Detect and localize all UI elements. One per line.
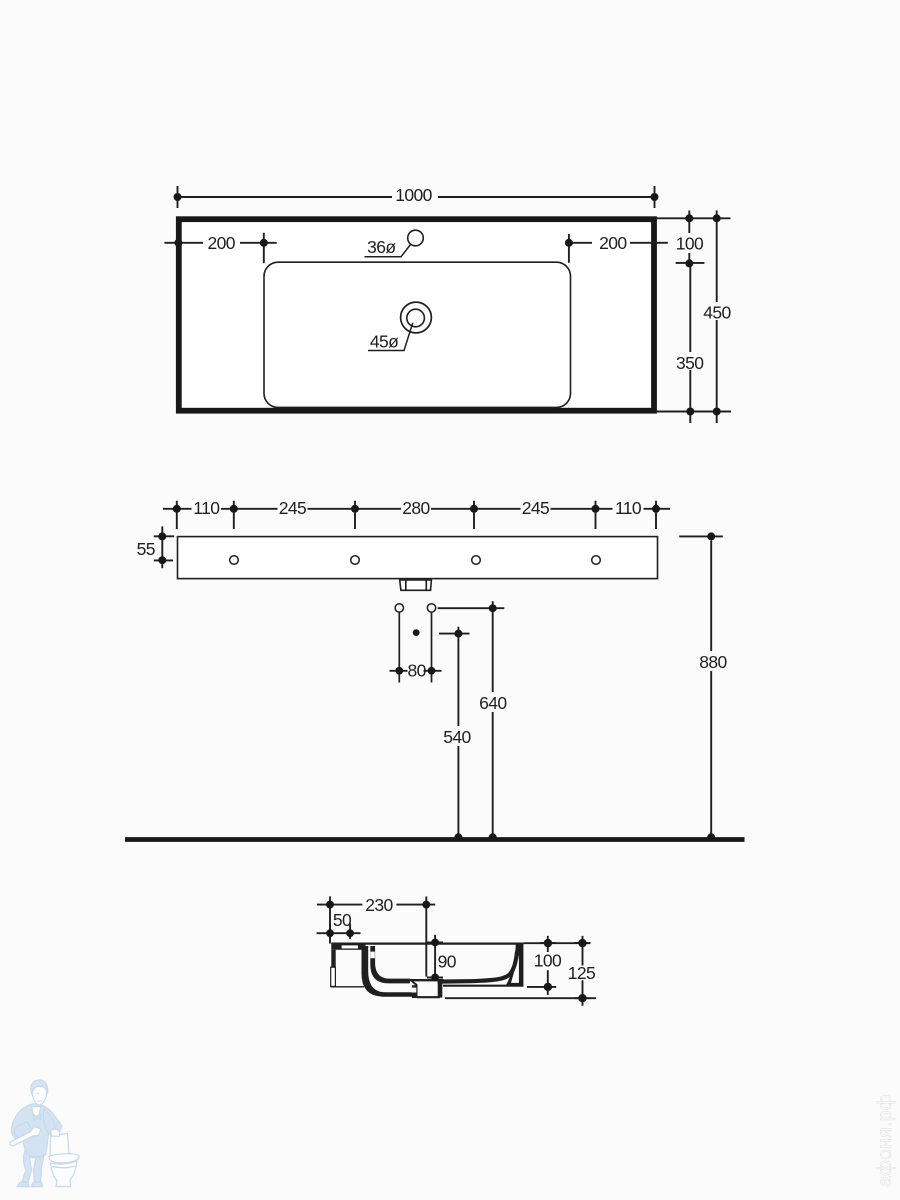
svg-text:афоня.рф: афоня.рф [875, 1094, 896, 1187]
svg-text:50: 50 [333, 910, 352, 930]
svg-text:90: 90 [438, 951, 457, 971]
svg-text:245: 245 [522, 498, 549, 518]
svg-text:880: 880 [699, 652, 727, 672]
svg-text:540: 540 [443, 727, 471, 747]
svg-text:100: 100 [676, 233, 704, 253]
svg-text:640: 640 [479, 693, 507, 713]
svg-text:245: 245 [279, 498, 306, 518]
svg-text:110: 110 [193, 498, 220, 518]
svg-text:45ø: 45ø [370, 332, 399, 352]
svg-text:80: 80 [407, 660, 426, 680]
svg-text:350: 350 [676, 353, 704, 373]
svg-text:230: 230 [365, 895, 393, 915]
svg-text:110: 110 [615, 498, 642, 518]
svg-text:200: 200 [207, 233, 235, 253]
svg-text:125: 125 [568, 963, 595, 983]
svg-text:1000: 1000 [395, 185, 432, 205]
svg-text:280: 280 [402, 498, 430, 518]
svg-text:200: 200 [599, 233, 627, 253]
svg-text:100: 100 [534, 951, 562, 971]
svg-text:450: 450 [703, 303, 731, 323]
svg-text:55: 55 [137, 539, 155, 559]
svg-text:36ø: 36ø [367, 237, 396, 257]
